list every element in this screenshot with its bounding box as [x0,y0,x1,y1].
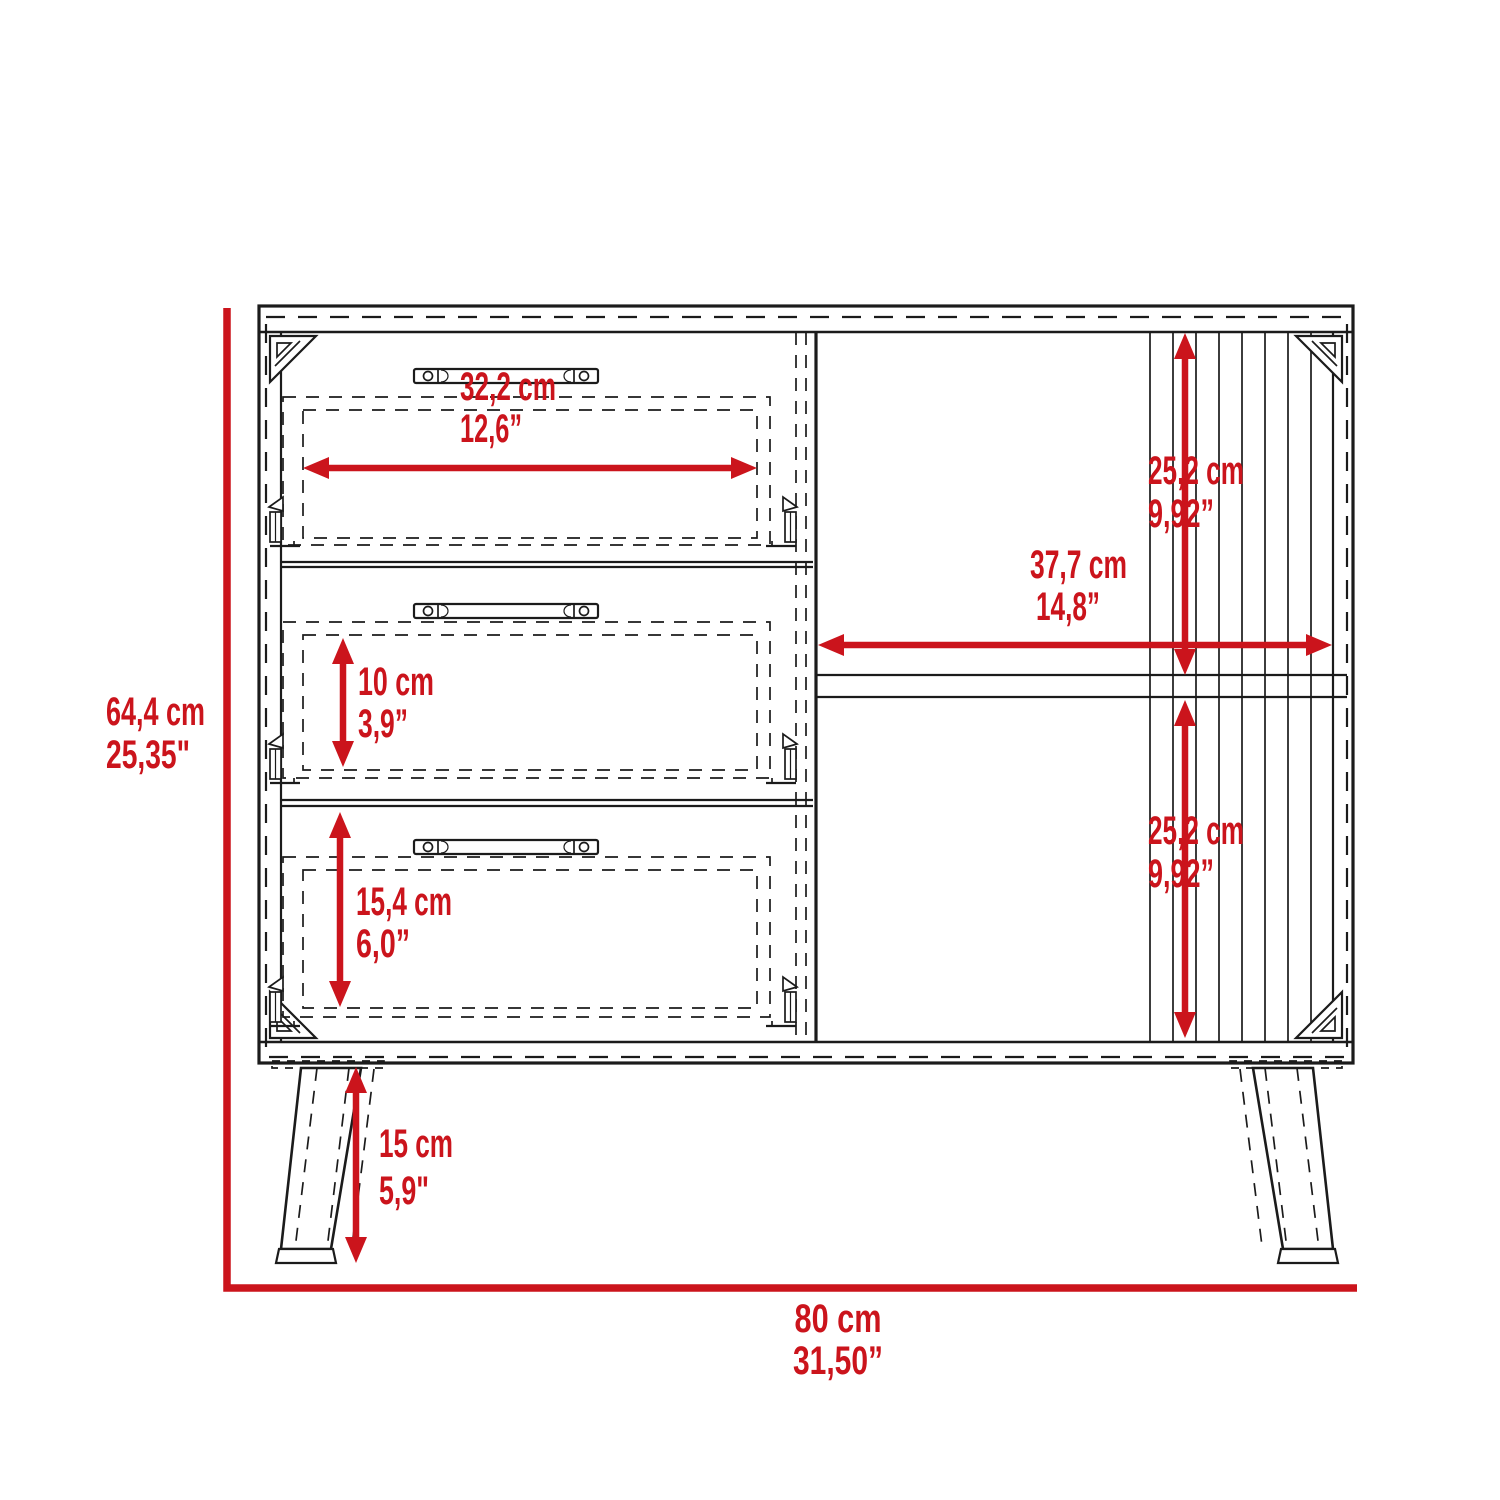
leg-foot [276,1249,336,1263]
leg-height-in-label: 5,9" [379,1169,429,1213]
arrowhead-down [332,741,354,767]
arrowhead-down [1174,649,1196,675]
side-compartment-width-in-label: 14,8” [1036,585,1100,629]
side-compartment [817,332,1347,1042]
drawer-width-cm-label: 32,2 cm [460,365,556,409]
overall-height-cm-label: 64,4 cm [106,690,205,734]
arrowhead-down [1174,1012,1196,1038]
upper-compartment-height-cm-label: 25,2 cm [1148,449,1244,493]
overall-height-in-label: 25,35" [106,733,190,777]
arrowhead-up [1174,333,1196,359]
leg-height-cm-label: 15 cm [379,1122,453,1166]
slatted-door [1150,332,1311,1042]
drawer-slide [269,497,300,546]
arrowhead-up [329,812,351,838]
leg-right [1230,1061,1342,1263]
arrowhead-up [332,638,354,664]
overall-width-in-label: 31,50” [793,1339,883,1383]
drawer-middle-handle [414,604,598,618]
bottom-drawer-height-cm-label: 15,4 cm [356,880,452,924]
dim-leg-height: 15 cm 5,9" [345,1067,453,1263]
corner-bracket-top-right [1296,336,1342,382]
drawer-middle-hidden-box [283,622,770,778]
upper-compartment-height-in-label: 9,92” [1148,492,1214,536]
arrowhead-left [818,634,844,656]
arrowhead-right [731,457,757,479]
arrowhead-down [329,981,351,1007]
leg-left [272,1061,384,1263]
middle-drawer-height-cm-label: 10 cm [358,660,434,704]
overall-width-cm-label: 80 cm [795,1297,882,1341]
leg-foot [1278,1249,1338,1263]
arrowhead-up [1174,700,1196,726]
arrowhead-left [303,457,329,479]
furniture-dimension-diagram: 64,4 cm 25,35" 80 cm 31,50” 32,2 cm 12,6… [0,0,1500,1500]
bottom-drawer-height-in-label: 6,0” [356,922,410,966]
drawer-slide [269,734,300,783]
dim-middle-drawer-height: 10 cm 3,9” [332,638,434,767]
dim-drawer-opening-width: 32,2 cm 12,6” [303,365,757,479]
corner-bracket-top-left [270,336,316,382]
drawer-width-in-label: 12,6” [460,407,522,451]
middle-drawer-height-in-label: 3,9” [358,702,408,746]
dim-side-compartment-width: 37,7 cm 14,8” [818,543,1332,656]
drawer-bottom-handle [414,840,598,854]
arrowhead-right [1306,634,1332,656]
lower-compartment-height-in-label: 9,92” [1148,852,1214,896]
lower-compartment-height-cm-label: 25,2 cm [1148,809,1244,853]
arrowhead-down [345,1237,367,1263]
corner-bracket-bottom-right [1296,992,1342,1038]
side-compartment-width-cm-label: 37,7 cm [1030,543,1127,587]
